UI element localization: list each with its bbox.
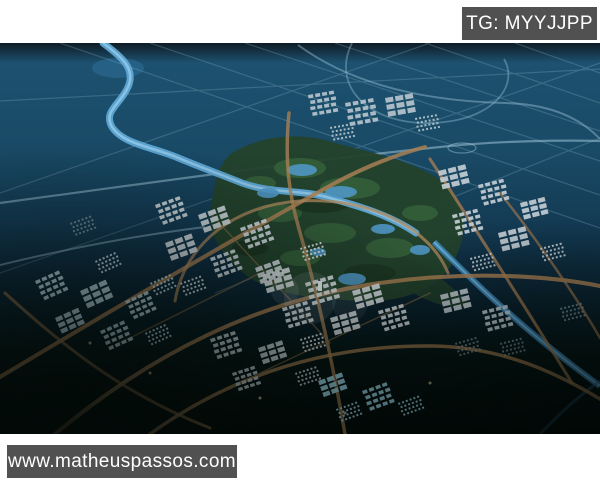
- page: TG: MYYJJPP: [0, 0, 600, 480]
- city-render-svg: [0, 43, 600, 434]
- telegram-badge: TG: MYYJJPP: [462, 7, 597, 40]
- website-badge: www.matheuspassos.com: [7, 445, 237, 478]
- city-render-image: [0, 43, 600, 434]
